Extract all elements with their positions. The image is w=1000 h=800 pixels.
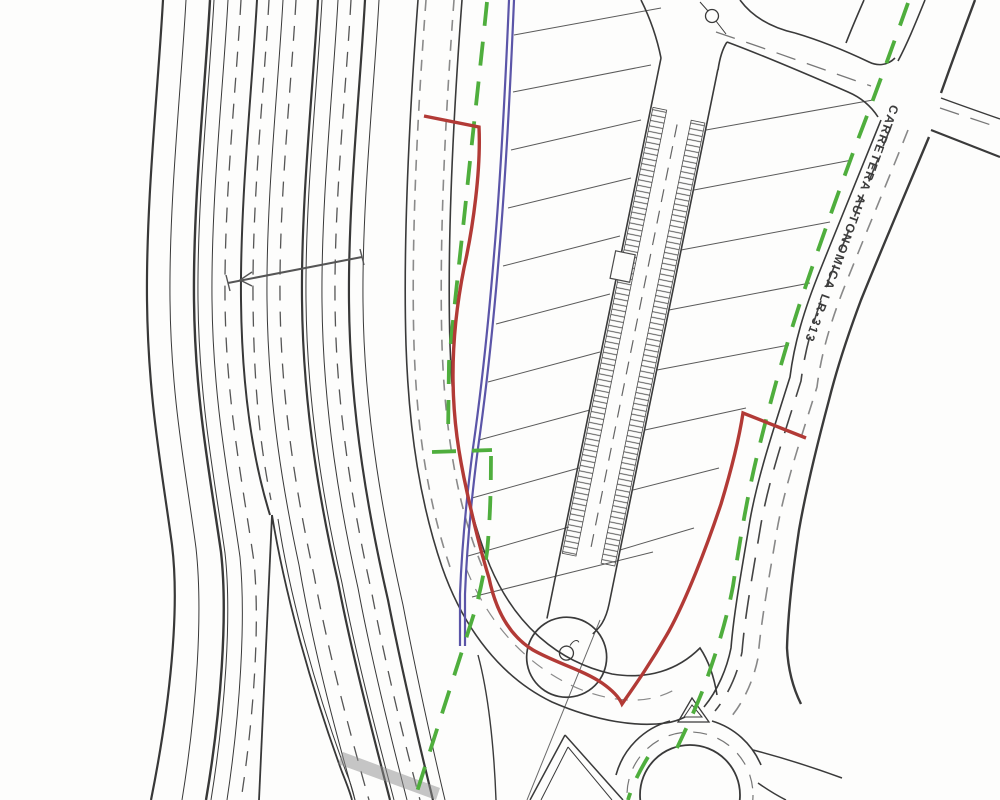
loop-road-outer-edge [405,0,442,567]
road-label-group: CARRETERA AUTONOMICA LR-313 [802,103,901,345]
lr313-center-dashes [731,130,908,717]
well-icon [706,10,719,23]
ramp-gore-left [259,515,272,800]
spine-center-dashes [590,125,677,554]
highway-group [147,0,445,800]
boundary-red [424,116,806,704]
spine-west-edge [547,58,661,619]
culvert-crossing [226,249,364,291]
roundabout-island [640,745,740,800]
loop-road-center-dashes [466,568,674,700]
lr313-west-edge-upper [898,0,925,61]
north-branch-east-corner [846,0,864,43]
top-road-north-edge [795,33,895,65]
east-exit-lower-edge [758,783,786,800]
south-gore-leg [530,735,623,800]
highway-line [170,0,199,800]
lr313-road-label: CARRETERA AUTONOMICA LR-313 [802,103,901,345]
highway-edge [349,0,433,800]
highway-edge [147,0,175,800]
south-gore-leg-inner [541,747,612,800]
spine-road-group [519,55,726,704]
lr313-east-edge-upper [941,0,975,93]
east-continuation-south-edge [931,130,1000,157]
green-boundary-east [628,3,908,800]
top-road-south-edge [727,42,878,117]
roundabout-lane-dashes [627,732,753,800]
highway-lane-dashes [225,0,256,800]
highway-edge [241,0,270,515]
spine-flare-east [718,42,727,70]
well-icon-tail [700,2,726,34]
south-road-west-edge [478,655,496,800]
highway-line [322,0,407,800]
plan-drawing: CARRETERA AUTONOMICA LR-313 [0,0,1000,800]
utility-line-twin [465,0,514,646]
site-plan-svg: CARRETERA AUTONOMICA LR-313 [0,0,1000,800]
red-boundary [424,116,806,704]
roundabout-outer-ne [712,721,761,765]
ramp-gore-right [272,515,352,800]
east-continuation-dashes [940,108,1000,128]
lr313-road-group [704,0,975,717]
highway-line [212,0,242,800]
highway-line [306,0,394,800]
east-exit-upper-edge [753,750,842,778]
manhole-tail [570,639,579,647]
east-continuation-north-edge [941,98,1000,119]
highway-lane-dashes [253,0,271,500]
north-branch-west-corner [740,0,795,33]
loop-road-margin-dashes [413,0,450,567]
loop-road-inner-edge-bottom [490,566,717,695]
